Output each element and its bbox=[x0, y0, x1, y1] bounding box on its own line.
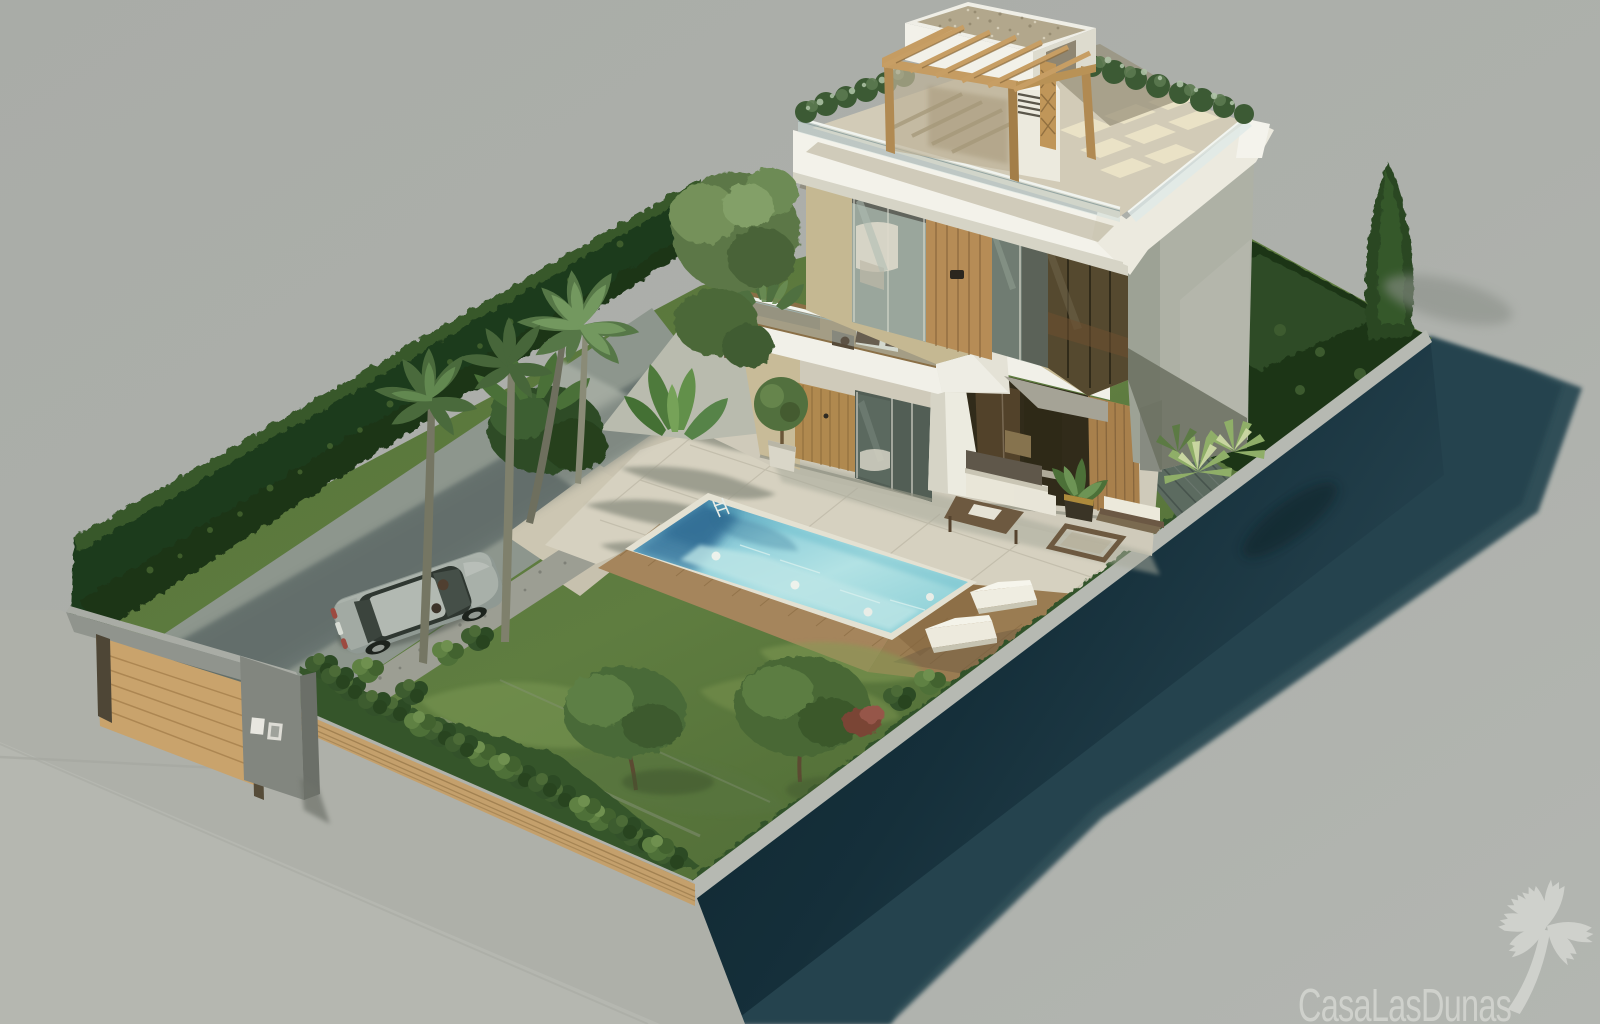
svg-text:CasaLasDunas: CasaLasDunas bbox=[1298, 981, 1511, 1024]
